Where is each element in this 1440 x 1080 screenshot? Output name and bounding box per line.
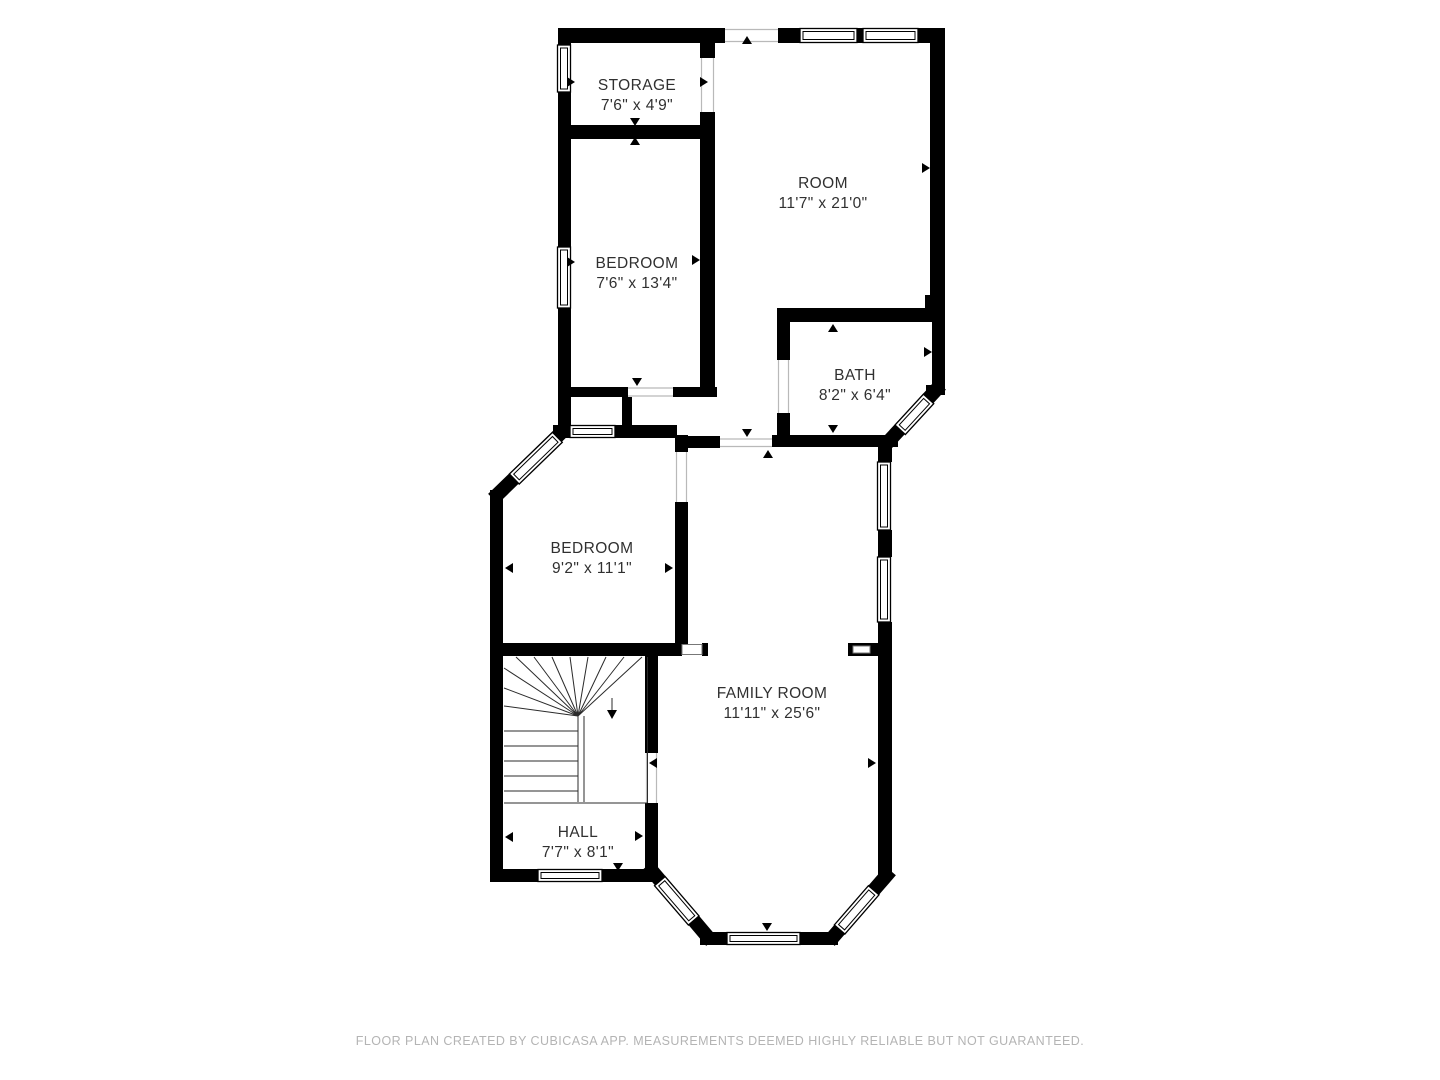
room-name: BEDROOM bbox=[596, 254, 679, 274]
window-bath-diagonal bbox=[895, 394, 934, 434]
room-label-bedroom-upper: BEDROOM 7'6" x 13'4" bbox=[596, 254, 679, 294]
window-room-top-right bbox=[863, 29, 918, 43]
room-label-bedroom-lower: BEDROOM 9'2" x 11'1" bbox=[551, 539, 634, 579]
room-dims: 11'11" x 25'6" bbox=[717, 704, 828, 724]
footer-disclaimer: FLOOR PLAN CREATED BY CUBICASA APP. MEAS… bbox=[0, 1034, 1440, 1048]
window-bay-bottom bbox=[727, 933, 800, 945]
room-name: ROOM bbox=[778, 174, 867, 194]
room-label-family-room: FAMILY ROOM 11'11" x 25'6" bbox=[717, 684, 828, 724]
room-label-room: ROOM 11'7" x 21'0" bbox=[778, 174, 867, 214]
room-dims: 7'6" x 4'9" bbox=[598, 96, 676, 116]
floor-plan: STORAGE 7'6" x 4'9" ROOM 11'7" x 21'0" B… bbox=[0, 0, 1440, 1080]
window-bay-left-diagonal bbox=[654, 877, 699, 926]
window-bedroom2-top bbox=[570, 426, 615, 438]
room-label-storage: STORAGE 7'6" x 4'9" bbox=[598, 76, 676, 116]
room-label-bath: BATH 8'2" x 6'4" bbox=[819, 366, 891, 406]
windows bbox=[509, 29, 933, 945]
room-dims: 11'7" x 21'0" bbox=[778, 194, 867, 214]
room-dims: 7'6" x 13'4" bbox=[596, 274, 679, 294]
floor-plan-drawing bbox=[0, 0, 1440, 1080]
room-name: FAMILY ROOM bbox=[717, 684, 828, 704]
window-hall-bottom bbox=[538, 870, 602, 882]
room-name: BATH bbox=[819, 366, 891, 386]
window-bedroom-left bbox=[558, 247, 571, 308]
room-name: BEDROOM bbox=[551, 539, 634, 559]
room-dims: 8'2" x 6'4" bbox=[819, 386, 891, 406]
room-dims: 7'7" x 8'1" bbox=[542, 843, 614, 863]
room-name: HALL bbox=[542, 823, 614, 843]
window-room-top-left bbox=[800, 29, 857, 43]
staircase bbox=[504, 657, 648, 803]
window-bedroom2-corner-diagonal bbox=[509, 432, 562, 484]
window-familyroom-right-2 bbox=[878, 557, 891, 622]
walls bbox=[490, 28, 945, 945]
room-dims: 9'2" x 11'1" bbox=[551, 559, 634, 579]
room-name: STORAGE bbox=[598, 76, 676, 96]
window-bay-right-diagonal bbox=[834, 886, 879, 934]
room-label-hall: HALL 7'7" x 8'1" bbox=[542, 823, 614, 863]
window-familyroom-right-1 bbox=[878, 462, 891, 530]
stairs-down-arrow bbox=[607, 698, 617, 719]
